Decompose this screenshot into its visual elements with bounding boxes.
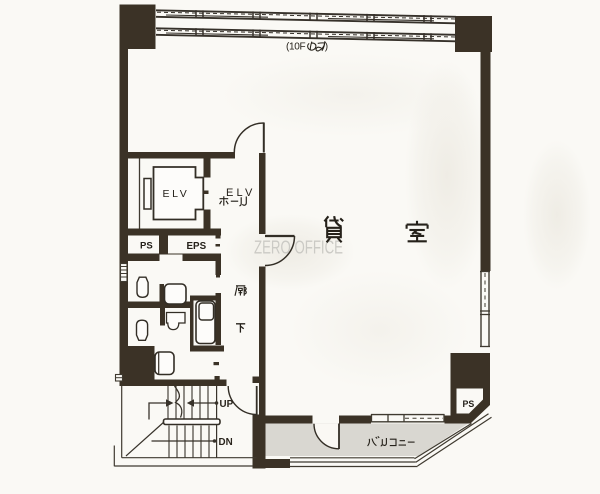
svg-text:PS: PS [463,399,475,409]
svg-text:ZERO OFFICE: ZERO OFFICE [254,238,343,258]
svg-text:ELV: ELV [163,188,190,200]
svg-text:PS: PS [140,241,153,252]
svg-text:): ) [325,42,328,53]
svg-text:EPS: EPS [187,241,207,252]
svg-text:UP: UP [220,399,234,410]
svg-text:DN: DN [219,437,233,448]
svg-text:(10F: (10F [286,42,306,53]
